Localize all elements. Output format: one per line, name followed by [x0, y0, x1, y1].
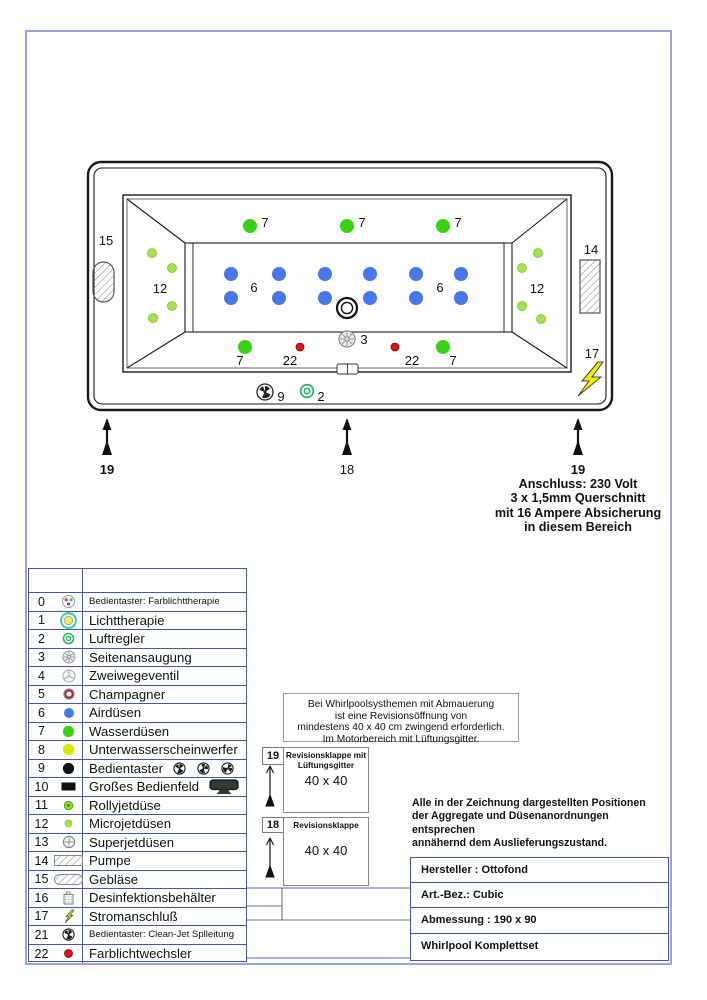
arrow-label: 19	[100, 462, 114, 477]
airduese-dot	[318, 267, 332, 281]
legend-row-10: 10 Großes Bedienfeld	[29, 778, 246, 797]
power-note-line: in diesem Bereich	[487, 520, 669, 534]
legend-row-11: 11 Rollyjetdüse	[29, 797, 246, 816]
legend-row-9: 9 Bedientaster	[29, 760, 246, 779]
legend-row-8: 8 Unterwasserscheinwerfer	[29, 741, 246, 760]
revision-notice-box: Bei Whirlpoolsysthemen mit Abmauerungist…	[283, 693, 519, 742]
legend-row-1: 1 Lichttherapie	[29, 612, 246, 631]
arrow-label: 19	[571, 462, 585, 477]
legend-label: Bedientaster	[89, 761, 163, 776]
farblichtwechsler-icon	[54, 948, 83, 959]
notice-line: Bei Whirlpoolsysthemen mit Abmauerung	[284, 699, 518, 711]
legend-row-12: 12 Microjetdüsen	[29, 815, 246, 834]
rev18-arrow	[266, 838, 274, 877]
arrow-base	[573, 440, 583, 455]
legend-label: Lichttherapie	[89, 613, 165, 628]
microjet-dot	[168, 264, 177, 273]
legend-row-22: 22 Farblichtwechsler	[29, 945, 246, 964]
arrow-base	[342, 440, 352, 455]
airduese-icon	[54, 707, 83, 719]
legend-num: 21	[29, 928, 54, 942]
legend-label: Superjetdüsen	[89, 835, 174, 850]
position-note-line: annähernd dem Auslieferungszustand.	[412, 837, 668, 850]
rev19-box: Revisionsklappe mit Lüftungsgitter 40 x …	[283, 747, 369, 813]
rev19-number: 19	[262, 747, 284, 765]
legend-num: 10	[29, 780, 54, 794]
wasserduese-dot	[436, 340, 450, 354]
legend-label: Großes Bedienfeld	[89, 779, 199, 794]
microjet-icon	[54, 819, 83, 828]
microjet-dot	[537, 315, 546, 324]
pumpe-icon	[54, 855, 83, 866]
rev18-number: 18	[262, 817, 284, 833]
stromanschluss-label: 17	[585, 346, 599, 361]
lichttherapie-icon	[54, 612, 83, 629]
arrow-head	[343, 418, 352, 430]
legend-table: 0 Bedientaster: Farblichttherapie 1 Lich…	[28, 568, 247, 962]
legend-num: 2	[29, 632, 54, 646]
microjet-dot	[518, 264, 527, 273]
microjet-dot	[168, 302, 177, 311]
legend-label: Farblichtwechsler	[89, 946, 192, 961]
legend-label: Bedientaster: Farblichttherapie	[89, 596, 220, 607]
position-note-line: der Aggregate und Düsenanordnungen entsp…	[412, 810, 668, 837]
legend-label: Champagner	[89, 687, 165, 702]
legend-row-21: 21 Bedientaster: Clean-Jet Splleitung	[29, 926, 246, 945]
position-note-line: Alle in der Zeichnung dargestellten Posi…	[412, 797, 668, 810]
legend-label: Gebläse	[89, 872, 138, 887]
bedientaster-icon	[54, 762, 83, 775]
farblicht-dot	[391, 343, 399, 351]
legend-label: Seitenansaugung	[89, 650, 192, 665]
arrow-head	[574, 418, 583, 430]
btn-farblicht-icon	[54, 594, 83, 609]
wasserduese-dot-label: 7	[236, 353, 243, 368]
legend-num: 15	[29, 872, 54, 886]
legend-num: 6	[29, 706, 54, 720]
legend-num: 14	[29, 854, 54, 868]
rollyjet-icon	[54, 800, 83, 811]
luftregler-label: 2	[317, 389, 324, 404]
bedientaster-icon	[257, 384, 273, 400]
farblicht-dot	[296, 343, 304, 351]
legend-label: Zweiwegeventil	[89, 668, 179, 683]
wasserduese-dot	[436, 219, 450, 233]
legend-row-13: 13 Superjetdüsen	[29, 834, 246, 853]
legend-num: 7	[29, 724, 54, 738]
farblicht-dot-label: 22	[405, 353, 419, 368]
arrow-label: 18	[340, 462, 354, 477]
airduese-dot	[454, 291, 468, 305]
wasserduese-dot	[340, 219, 354, 233]
microjet-dot-label: 12	[153, 281, 167, 296]
arrow-base	[102, 440, 112, 455]
airduese-dot	[363, 267, 377, 281]
legend-row-17: 17 Stromanschluß	[29, 908, 246, 927]
info-table-row: Art.-Bez.: Cubic	[411, 883, 668, 908]
legend-label: Desinfektionsbehälter	[89, 890, 216, 905]
legend-row-14: 14 Pumpe	[29, 852, 246, 871]
legend-num: 12	[29, 817, 54, 831]
rev18-size: 40 x 40	[284, 843, 368, 858]
arrow-head	[103, 418, 112, 430]
superjet-icon	[54, 835, 83, 849]
power-note-line: 3 x 1,5mm Querschnitt	[487, 491, 669, 505]
pumpe-shape	[580, 260, 600, 313]
bedienfeld-icon	[54, 782, 83, 791]
luftregler-icon	[54, 632, 83, 645]
strom-icon	[54, 909, 83, 924]
drawing-page: { "tub": { "wasserduesen": {"label":"7",…	[0, 0, 707, 1000]
legend-label: Wasserdüsen	[89, 724, 169, 739]
airduese-dot-label: 6	[250, 280, 257, 295]
legend-num: 16	[29, 891, 54, 905]
info-table-row: Abmessung : 190 x 90	[411, 908, 668, 933]
legend-label: Unterwasserscheinwerfer	[89, 742, 238, 757]
microjet-dot	[148, 249, 157, 258]
zweiwegeventil-icon	[54, 669, 83, 683]
power-connection-note: Anschluss: 230 Volt3 x 1,5mm Querschnitt…	[487, 477, 669, 535]
airduese-dot	[409, 267, 423, 281]
legend-row-7: 7 Wasserdüsen	[29, 723, 246, 742]
rev19-arrow	[266, 766, 274, 806]
legend-header-row	[29, 569, 246, 593]
legend-num: 0	[29, 595, 54, 609]
legend-label: Rollyjetdüse	[89, 798, 161, 813]
legend-label: Microjetdüsen	[89, 816, 171, 831]
legend-num: 22	[29, 947, 54, 961]
airduese-dot	[318, 291, 332, 305]
legend-num: 9	[29, 761, 54, 775]
unterwasserscheinwerfer-icon	[54, 743, 83, 756]
headrest-shape	[337, 364, 358, 374]
notice-line: mindestens 40 x 40 cm zwingend erforderl…	[284, 722, 518, 734]
farblicht-dot-label: 22	[283, 353, 297, 368]
cleanjet-icon	[54, 928, 83, 941]
rev19-title-line2: Lüftungsgitter	[284, 761, 368, 771]
airduese-dot-label: 6	[436, 280, 443, 295]
geblaese-label: 15	[99, 233, 113, 248]
airduese-dot	[272, 267, 286, 281]
wasserduese-dot	[238, 340, 252, 354]
seitenansaugung-icon	[54, 650, 83, 664]
seitenansaugung-label: 3	[360, 332, 367, 347]
legend-row-3: 3 Seitenansaugung	[29, 649, 246, 668]
microjet-dot	[534, 249, 543, 258]
pumpe-label: 14	[584, 242, 598, 257]
legend-label: Pumpe	[89, 853, 131, 868]
notice-line: ist eine Revisionsöffnung von	[284, 711, 518, 723]
legend-num: 1	[29, 613, 54, 627]
info-table-row: Whirlpool Komplettset	[411, 934, 668, 959]
wasserduese-dot-label: 7	[358, 215, 365, 230]
legend-row-15: 15 Gebläse	[29, 871, 246, 890]
airduese-dot	[454, 267, 468, 281]
legend-row-4: 4 Zweiwegeventil	[29, 667, 246, 686]
wasserduese-dot-label: 7	[449, 353, 456, 368]
wasserduese-dot	[243, 219, 257, 233]
airduese-dot	[224, 267, 238, 281]
legend-num: 4	[29, 669, 54, 683]
microjet-dot	[518, 302, 527, 311]
rev18-box: Revisionsklappe 40 x 40	[283, 817, 369, 886]
seitenansaugung-icon	[339, 331, 355, 347]
info-table: Hersteller : OttofondArt.-Bez.: CubicAbm…	[410, 857, 669, 961]
info-table-row: Hersteller : Ottofond	[411, 858, 668, 883]
power-note-line: Anschluss: 230 Volt	[487, 477, 669, 491]
wasserduese-dot-label: 7	[454, 215, 461, 230]
legend-row-2: 2 Luftregler	[29, 630, 246, 649]
wasserduese-dot-label: 7	[261, 215, 268, 230]
rev19-size: 40 x 40	[284, 773, 368, 788]
microjet-dot	[149, 314, 158, 323]
desinfektion-icon	[54, 891, 83, 905]
legend-row-5: 5 Champagner	[29, 686, 246, 705]
legend-row-6: 6 Airdüsen	[29, 704, 246, 723]
legend-num: 8	[29, 743, 54, 757]
geblaese-shape	[93, 262, 114, 302]
geblaese-icon	[54, 874, 83, 885]
airduese-dot	[409, 291, 423, 305]
power-note-line: mit 16 Ampere Absicherung	[487, 506, 669, 520]
legend-num: 11	[29, 798, 54, 812]
bedientaster-label: 9	[277, 389, 284, 404]
legend-row-16: 16 Desinfektionsbehälter	[29, 889, 246, 908]
control-panel-icon	[209, 779, 240, 795]
legend-num: 5	[29, 687, 54, 701]
legend-num: 13	[29, 835, 54, 849]
titleblock-lines	[247, 888, 410, 958]
fan-icons	[173, 762, 234, 775]
airduese-dot	[224, 291, 238, 305]
position-note: Alle in der Zeichnung dargestellten Posi…	[412, 797, 668, 851]
legend-num: 3	[29, 650, 54, 664]
airduese-dot	[363, 291, 377, 305]
microjet-dot-label: 12	[530, 281, 544, 296]
airduese-dot	[272, 291, 286, 305]
legend-label: Bedientaster: Clean-Jet Splleitung	[89, 929, 234, 940]
legend-label: Stromanschluß	[89, 909, 178, 924]
rev18-title: Revisionsklappe	[284, 821, 368, 831]
legend-label: Airdüsen	[89, 705, 141, 720]
legend-num: 17	[29, 909, 54, 923]
legend-row-0: 0 Bedientaster: Farblichttherapie	[29, 593, 246, 612]
champagner-icon	[54, 688, 83, 700]
notice-line: Im Motorbereich mit Lüftungsgitter.	[284, 734, 518, 746]
legend-label: Luftregler	[89, 631, 145, 646]
wasserduese-icon	[54, 725, 83, 738]
